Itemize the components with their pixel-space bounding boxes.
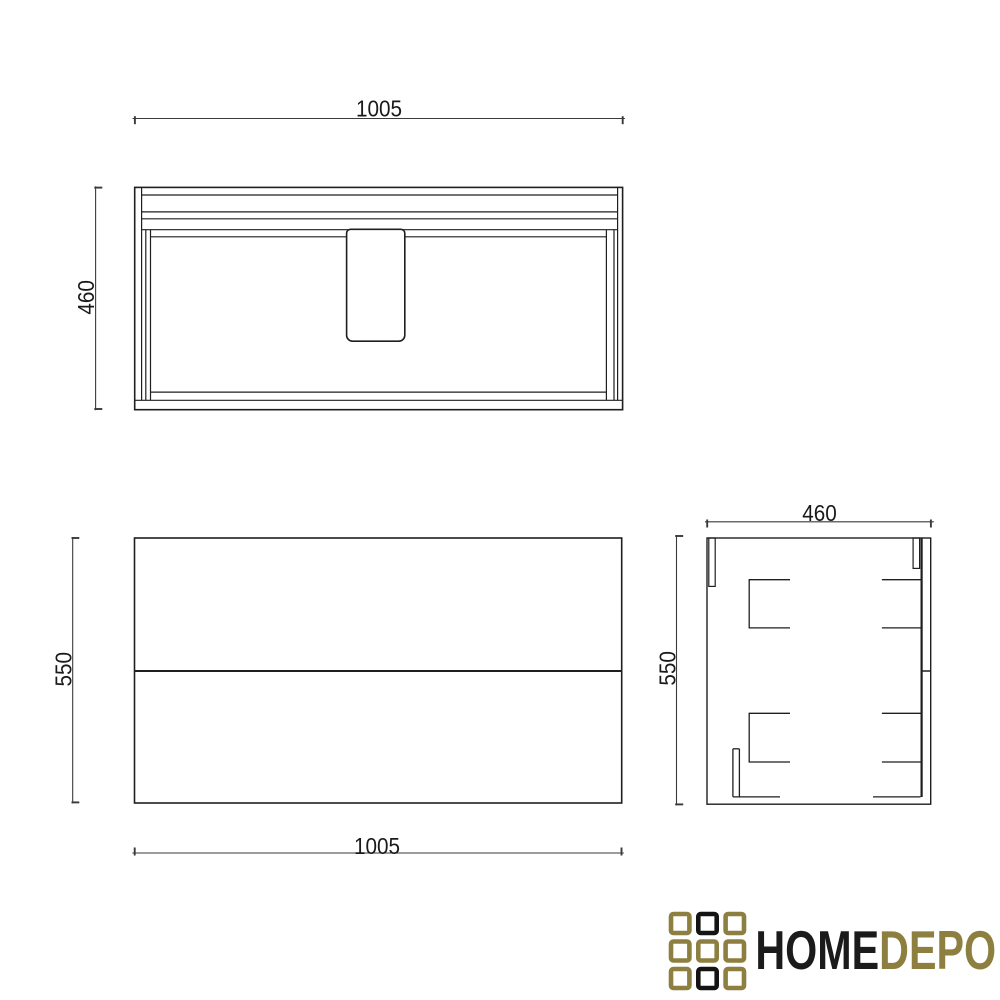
- svg-text:HOMEDEPO: HOMEDEPO: [755, 920, 996, 981]
- svg-text:1005: 1005: [354, 833, 400, 859]
- svg-text:550: 550: [50, 652, 76, 687]
- svg-text:550: 550: [655, 651, 681, 686]
- svg-text:460: 460: [802, 500, 837, 526]
- svg-text:460: 460: [73, 280, 99, 315]
- svg-text:1005: 1005: [356, 95, 402, 121]
